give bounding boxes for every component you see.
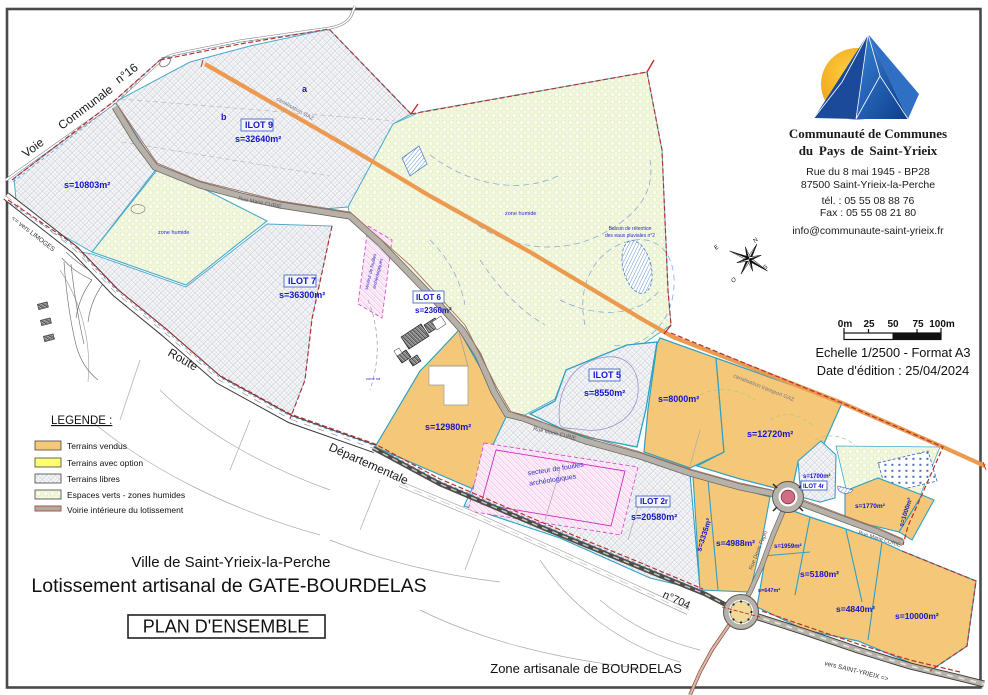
svg-text:LEGENDE :: LEGENDE : [51, 415, 112, 427]
svg-text:s=10803m²: s=10803m² [64, 180, 110, 190]
svg-text:zone humide: zone humide [158, 230, 190, 236]
svg-text:zone na: zone na [366, 376, 381, 381]
svg-text:ILOT 5: ILOT 5 [593, 370, 621, 380]
svg-text:info@communaute-saint-yrieix.f: info@communaute-saint-yrieix.fr [792, 225, 944, 237]
svg-text:s=2360m²: s=2360m² [415, 306, 452, 315]
svg-text:s=32640m²: s=32640m² [235, 134, 281, 144]
svg-text:s=4840m²: s=4840m² [836, 604, 875, 614]
svg-text:Date d'édition : 25/04/2024: Date d'édition : 25/04/2024 [817, 363, 970, 378]
svg-text:100m: 100m [929, 319, 955, 330]
svg-text:s=8550m²: s=8550m² [584, 388, 625, 398]
svg-text:Zone artisanale de BOURDELAS: Zone artisanale de BOURDELAS [490, 661, 682, 676]
svg-text:Echelle 1/2500 - Format A3: Echelle 1/2500 - Format A3 [815, 345, 970, 360]
svg-text:87500 Saint-Yrieix-la-Perche: 87500 Saint-Yrieix-la-Perche [801, 179, 935, 191]
svg-text:ILOT 2r: ILOT 2r [640, 497, 668, 506]
svg-text:tél. : 05 55 08 88 76: tél. : 05 55 08 88 76 [822, 195, 915, 207]
svg-text:ILOT 4r: ILOT 4r [803, 484, 825, 490]
svg-text:b: b [221, 112, 227, 122]
svg-text:Terrains vendus: Terrains vendus [67, 441, 127, 451]
svg-text:Terrains libres: Terrains libres [67, 474, 120, 484]
svg-text:Terrains avec option: Terrains avec option [67, 458, 143, 468]
svg-text:PLAN D'ENSEMBLE: PLAN D'ENSEMBLE [143, 617, 310, 637]
svg-text:Fax : 05 55 08 21 80: Fax : 05 55 08 21 80 [820, 207, 916, 219]
svg-text:s=10000m²: s=10000m² [895, 611, 939, 621]
svg-text:s=1700m²: s=1700m² [803, 473, 831, 480]
svg-text:s=36300m²: s=36300m² [279, 290, 325, 300]
svg-text:ILOT 6: ILOT 6 [416, 293, 441, 302]
svg-text:s=4988m²: s=4988m² [716, 538, 755, 548]
svg-text:0m: 0m [838, 319, 853, 330]
svg-text:50: 50 [887, 319, 899, 330]
svg-text:s=1959m²: s=1959m² [774, 543, 802, 550]
svg-text:75: 75 [912, 319, 924, 330]
svg-text:s=647m²: s=647m² [758, 587, 780, 594]
svg-text:Espaces verts - zones humides: Espaces verts - zones humides [67, 490, 185, 500]
svg-text:des eaux pluviales n°2: des eaux pluviales n°2 [605, 233, 655, 239]
svg-text:Bassin de rétention: Bassin de rétention [609, 226, 652, 232]
svg-text:s=12720m²: s=12720m² [747, 429, 793, 439]
svg-text:Ville de Saint-Yrieix-la-Perch: Ville de Saint-Yrieix-la-Perche [132, 554, 331, 571]
svg-text:s=1770m²: s=1770m² [855, 503, 886, 510]
svg-text:s=5180m²: s=5180m² [800, 569, 839, 579]
svg-text:ILOT 7: ILOT 7 [288, 276, 316, 286]
svg-text:s=20580m²: s=20580m² [631, 512, 677, 522]
svg-text:Voirie intérieure du lotisseme: Voirie intérieure du lotissement [67, 505, 184, 515]
svg-text:s=12980m²: s=12980m² [425, 422, 471, 432]
svg-text:du Pays de Saint-Yrieix: du Pays de Saint-Yrieix [799, 143, 938, 158]
svg-text:s=8000m²: s=8000m² [658, 394, 699, 404]
svg-text:Rue du 8 mai 1945 - BP28: Rue du 8 mai 1945 - BP28 [806, 166, 930, 178]
svg-text:Lotissement artisanal de GATE-: Lotissement artisanal de GATE-BOURDELAS [31, 575, 426, 597]
svg-text:zone humide: zone humide [505, 211, 537, 217]
svg-text:ILOT 9: ILOT 9 [245, 120, 273, 130]
svg-text:Communauté de Communes: Communauté de Communes [789, 126, 947, 141]
svg-text:25: 25 [863, 319, 875, 330]
